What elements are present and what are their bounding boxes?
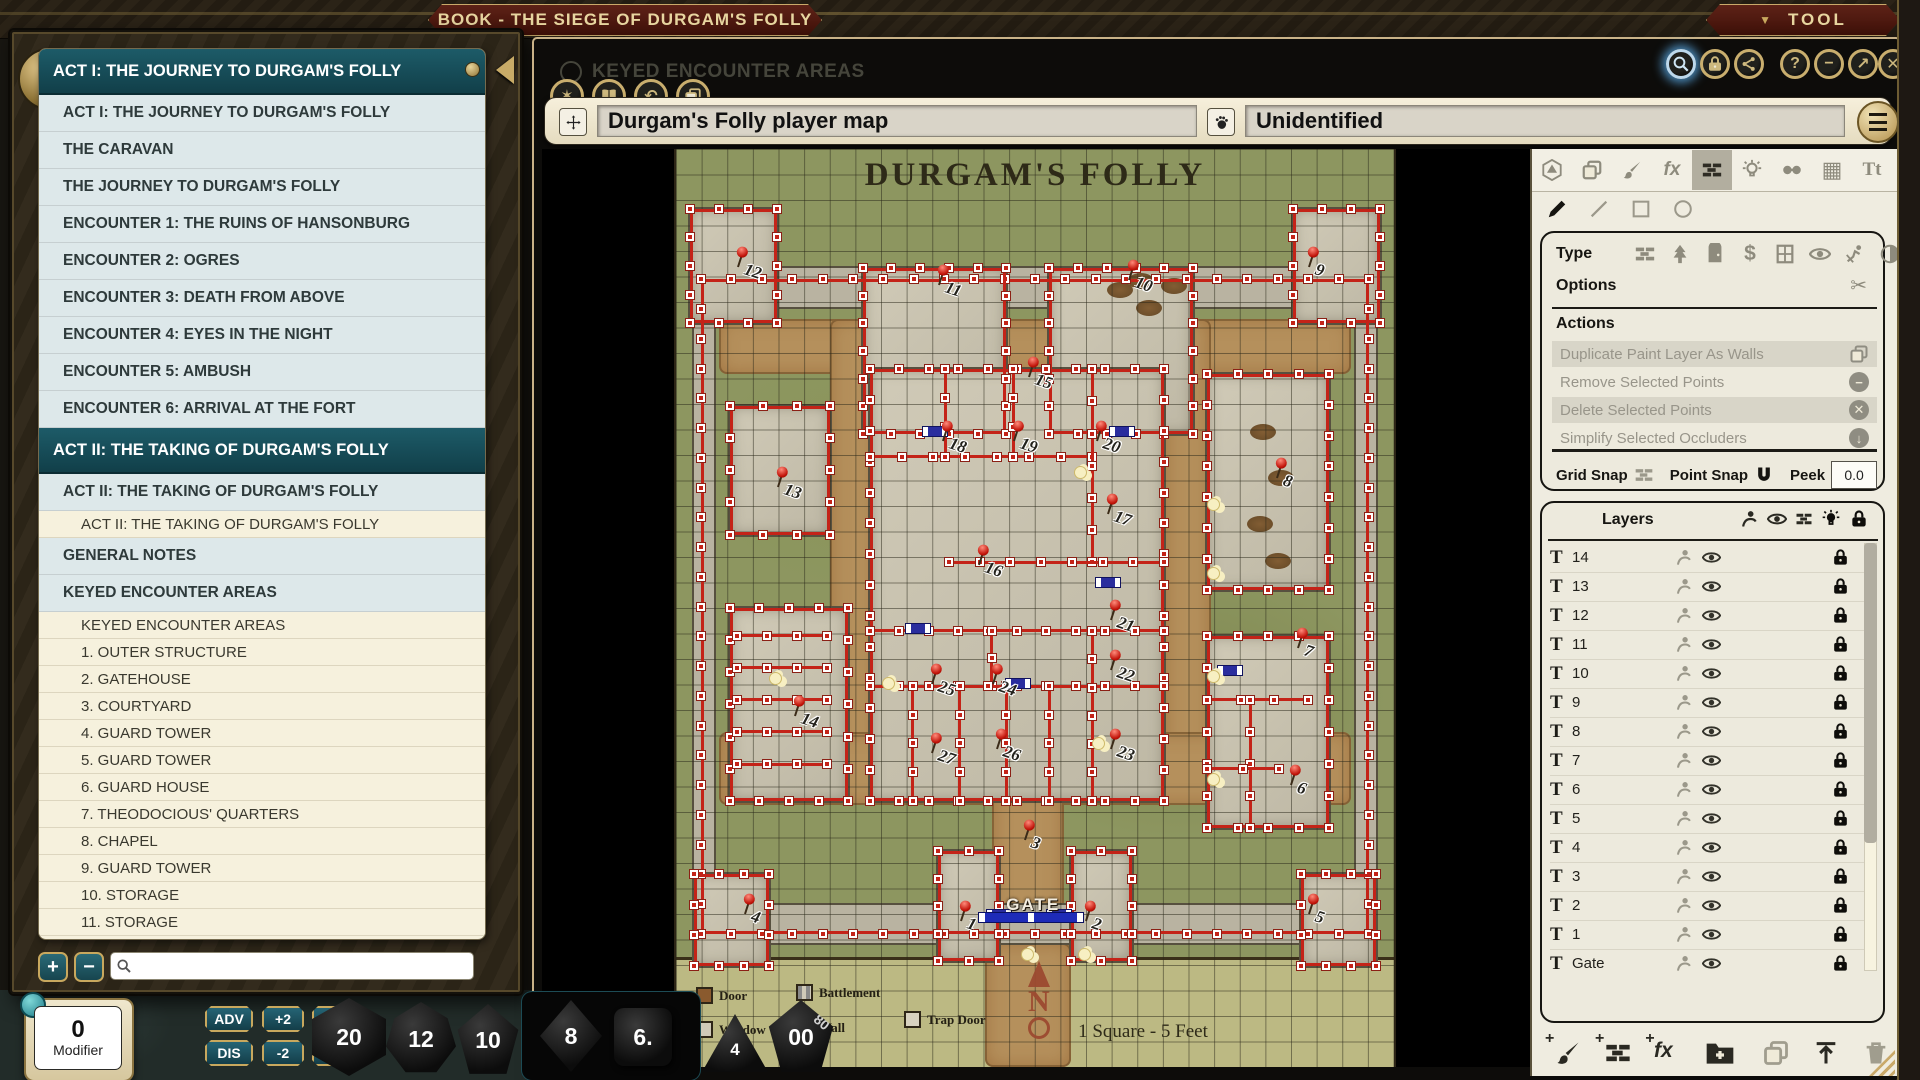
wall-node[interactable] bbox=[1071, 796, 1081, 806]
wall-node[interactable] bbox=[1100, 364, 1110, 374]
layer-row-2[interactable]: T2 bbox=[1550, 891, 1872, 921]
paint-tool-icon[interactable] bbox=[1612, 150, 1652, 190]
lock-layers-icon[interactable] bbox=[1849, 509, 1869, 529]
action-simplify-selected-occluders[interactable]: Simplify Selected Occluders↓ bbox=[1552, 425, 1877, 451]
layer-lock-icon[interactable] bbox=[1831, 838, 1850, 857]
wall-node[interactable] bbox=[843, 635, 853, 645]
plus2-button[interactable]: +2 bbox=[262, 1006, 304, 1032]
wall-node[interactable] bbox=[1159, 765, 1169, 775]
wall-node[interactable] bbox=[725, 497, 735, 507]
wall-node[interactable] bbox=[758, 401, 768, 411]
wall-node[interactable] bbox=[1245, 823, 1255, 833]
wall-node[interactable] bbox=[1324, 492, 1334, 502]
wall-node[interactable] bbox=[696, 453, 706, 463]
wall-node[interactable] bbox=[696, 364, 706, 374]
share-window-button[interactable] bbox=[1734, 49, 1764, 79]
wall-node[interactable] bbox=[894, 796, 904, 806]
wall-node[interactable] bbox=[1087, 396, 1097, 406]
wall-node[interactable] bbox=[772, 261, 782, 271]
wall-node[interactable] bbox=[983, 796, 993, 806]
wall-node[interactable] bbox=[792, 631, 802, 641]
layer-player-visibility-icon[interactable] bbox=[1674, 954, 1693, 973]
wall-node[interactable] bbox=[1087, 711, 1097, 721]
wall-node[interactable] bbox=[685, 204, 695, 214]
wall-occluder-line[interactable] bbox=[737, 666, 827, 669]
wall-node[interactable] bbox=[933, 956, 943, 966]
toc-item[interactable]: 10. STORAGE bbox=[39, 882, 485, 909]
wall-node[interactable] bbox=[1288, 318, 1298, 328]
wall-node[interactable] bbox=[1294, 369, 1304, 379]
wall-node[interactable] bbox=[696, 483, 706, 493]
wall-node[interactable] bbox=[1008, 452, 1018, 462]
wall-node[interactable] bbox=[696, 512, 706, 522]
wall-node[interactable] bbox=[953, 364, 963, 374]
wall-node[interactable] bbox=[1130, 364, 1140, 374]
mask-tool-icon[interactable] bbox=[1772, 150, 1812, 190]
wall-node[interactable] bbox=[1087, 493, 1097, 503]
wall-node[interactable] bbox=[908, 796, 918, 806]
wall-node[interactable] bbox=[865, 549, 875, 559]
wall-node[interactable] bbox=[944, 557, 954, 567]
wall-node[interactable] bbox=[933, 901, 943, 911]
wall-node[interactable] bbox=[792, 530, 802, 540]
wall-occluder-line[interactable] bbox=[737, 763, 827, 766]
toc-item[interactable]: 9. GUARD TOWER bbox=[39, 855, 485, 882]
wall-node[interactable] bbox=[1030, 274, 1040, 284]
wall-node[interactable] bbox=[1288, 232, 1298, 242]
toc-item[interactable]: 7. THEODOCIOUS' QUARTERS bbox=[39, 801, 485, 828]
layer-visibility-icon[interactable] bbox=[1702, 577, 1721, 596]
wall-node[interactable] bbox=[1001, 796, 1011, 806]
layer-visibility-icon[interactable] bbox=[1702, 954, 1721, 973]
rect-draw-icon[interactable] bbox=[1626, 194, 1656, 224]
wall-node[interactable] bbox=[1364, 364, 1374, 374]
wall-node[interactable] bbox=[915, 263, 925, 273]
wall-node[interactable] bbox=[714, 961, 724, 971]
wall-node[interactable] bbox=[1001, 767, 1011, 777]
dice-tool-icon[interactable] bbox=[1532, 150, 1572, 190]
wall-node[interactable] bbox=[714, 869, 724, 879]
circle-draw-icon[interactable] bbox=[1668, 194, 1698, 224]
wall-occluder-line[interactable] bbox=[1012, 369, 1015, 456]
wall-node[interactable] bbox=[1044, 263, 1054, 273]
wall-node[interactable] bbox=[1188, 318, 1198, 328]
wall-node[interactable] bbox=[865, 488, 875, 498]
wall-node[interactable] bbox=[1212, 274, 1222, 284]
wall-node[interactable] bbox=[689, 900, 699, 910]
wall-node[interactable] bbox=[1364, 483, 1374, 493]
wall-node[interactable] bbox=[1236, 695, 1246, 705]
wall-node[interactable] bbox=[1100, 681, 1110, 691]
wall-node[interactable] bbox=[772, 232, 782, 242]
layer-visibility-icon[interactable] bbox=[1702, 780, 1721, 799]
wall-node[interactable] bbox=[818, 274, 828, 284]
layer-player-visibility-icon[interactable] bbox=[1674, 751, 1693, 770]
layer-player-visibility-icon[interactable] bbox=[1674, 780, 1693, 799]
wall-node[interactable] bbox=[924, 364, 934, 374]
wall-node[interactable] bbox=[1182, 929, 1192, 939]
wall-node[interactable] bbox=[1044, 738, 1054, 748]
wall-node[interactable] bbox=[754, 603, 764, 613]
line-draw-icon[interactable] bbox=[1584, 194, 1614, 224]
map-share-field[interactable]: Unidentified bbox=[1245, 105, 1845, 137]
paw-token-icon[interactable] bbox=[1207, 108, 1235, 136]
toc-item[interactable]: ENCOUNTER 4: EYES IN THE NIGHT bbox=[39, 317, 485, 354]
wall-node[interactable] bbox=[1087, 525, 1097, 535]
wall-node[interactable] bbox=[994, 846, 1004, 856]
wall-node[interactable] bbox=[894, 681, 904, 691]
wall-node[interactable] bbox=[1202, 369, 1212, 379]
type-window-icon[interactable] bbox=[1772, 241, 1798, 267]
wall-node[interactable] bbox=[1273, 274, 1283, 284]
layer-lock-icon[interactable] bbox=[1831, 780, 1850, 799]
wall-node[interactable] bbox=[1087, 461, 1097, 471]
wall-node[interactable] bbox=[743, 204, 753, 214]
wall-node[interactable] bbox=[762, 695, 772, 705]
wall-node[interactable] bbox=[848, 929, 858, 939]
wall-node[interactable] bbox=[1159, 580, 1169, 590]
wall-node[interactable] bbox=[1346, 204, 1356, 214]
layer-row-8[interactable]: T8 bbox=[1550, 717, 1872, 747]
layer-visibility-icon[interactable] bbox=[1702, 838, 1721, 857]
wall-node[interactable] bbox=[696, 334, 706, 344]
wall-node[interactable] bbox=[1294, 585, 1304, 595]
wall-node[interactable] bbox=[1001, 710, 1011, 720]
wall-occluder-outline[interactable] bbox=[1293, 209, 1379, 324]
wall-node[interactable] bbox=[1274, 764, 1284, 774]
wall-node[interactable] bbox=[843, 603, 853, 613]
wall-node[interactable] bbox=[1317, 318, 1327, 328]
wall-node[interactable] bbox=[822, 727, 832, 737]
wall-node[interactable] bbox=[814, 796, 824, 806]
light-marker[interactable] bbox=[882, 677, 895, 690]
wall-node[interactable] bbox=[1001, 318, 1011, 328]
wall-node[interactable] bbox=[689, 869, 699, 879]
toc-item[interactable]: 2. GATEHOUSE bbox=[39, 666, 485, 693]
wall-node[interactable] bbox=[1317, 204, 1327, 214]
wall-node[interactable] bbox=[685, 232, 695, 242]
wall-node[interactable] bbox=[739, 869, 749, 879]
wall-node[interactable] bbox=[1233, 585, 1243, 595]
grid-tool-icon[interactable]: ▦ bbox=[1812, 150, 1852, 190]
wall-node[interactable] bbox=[865, 765, 875, 775]
wall-node[interactable] bbox=[825, 433, 835, 443]
type-terrain-icon[interactable] bbox=[1667, 241, 1693, 267]
toc-item[interactable]: ACT II: THE TAKING OF DURGAM'S FOLLY bbox=[39, 474, 485, 511]
wall-node[interactable] bbox=[908, 767, 918, 777]
wall-node[interactable] bbox=[1202, 431, 1212, 441]
toc-item[interactable]: ACT I: THE JOURNEY TO DURGAM'S FOLLY bbox=[39, 49, 485, 95]
layer-row-6[interactable]: T6 bbox=[1550, 775, 1872, 805]
wall-node[interactable] bbox=[762, 631, 772, 641]
minus2-button[interactable]: -2 bbox=[262, 1040, 304, 1066]
wall-node[interactable] bbox=[994, 929, 1004, 939]
wall-node[interactable] bbox=[908, 738, 918, 748]
layer-visibility-icon[interactable] bbox=[1702, 693, 1721, 712]
wall-node[interactable] bbox=[1159, 611, 1169, 621]
wall-node[interactable] bbox=[1159, 457, 1169, 467]
light-marker[interactable] bbox=[1092, 737, 1105, 750]
wall-node[interactable] bbox=[1073, 263, 1083, 273]
wall-occluder-line[interactable] bbox=[737, 634, 827, 637]
wall-node[interactable] bbox=[933, 846, 943, 856]
wall-node[interactable] bbox=[1067, 557, 1077, 567]
wall-node[interactable] bbox=[1324, 727, 1334, 737]
layer-visibility-icon[interactable] bbox=[1702, 606, 1721, 625]
wall-node[interactable] bbox=[1364, 661, 1374, 671]
type-wall-icon[interactable] bbox=[1632, 241, 1658, 267]
wall-node[interactable] bbox=[1375, 261, 1385, 271]
wall-node[interactable] bbox=[908, 681, 918, 691]
wall-node[interactable] bbox=[725, 433, 735, 443]
wall-node[interactable] bbox=[858, 346, 868, 356]
wall-node[interactable] bbox=[725, 530, 735, 540]
wall-node[interactable] bbox=[1127, 846, 1137, 856]
wall-node[interactable] bbox=[1324, 631, 1334, 641]
wall-node[interactable] bbox=[772, 318, 782, 328]
wall-node[interactable] bbox=[865, 626, 875, 636]
wall-node[interactable] bbox=[1324, 369, 1334, 379]
layer-lock-icon[interactable] bbox=[1831, 606, 1850, 625]
zoom-out-button[interactable]: − bbox=[74, 952, 104, 982]
wall-node[interactable] bbox=[1296, 900, 1306, 910]
wall-node[interactable] bbox=[1100, 796, 1110, 806]
wall-node[interactable] bbox=[1273, 929, 1283, 939]
layer-player-visibility-icon[interactable] bbox=[1674, 693, 1693, 712]
wall-node[interactable] bbox=[1242, 929, 1252, 939]
action-remove-selected-points[interactable]: Remove Selected Points− bbox=[1552, 369, 1877, 395]
wall-node[interactable] bbox=[1036, 557, 1046, 567]
toc-item[interactable]: 11. STORAGE bbox=[39, 909, 485, 936]
toc-item[interactable]: THE CARAVAN bbox=[39, 132, 485, 169]
wall-node[interactable] bbox=[858, 263, 868, 273]
layer-player-visibility-icon[interactable] bbox=[1674, 635, 1693, 654]
wall-node[interactable] bbox=[1364, 453, 1374, 463]
layer-visibility-icon[interactable] bbox=[1702, 925, 1721, 944]
wall-node[interactable] bbox=[696, 602, 706, 612]
wall-node[interactable] bbox=[1012, 626, 1022, 636]
wall-node[interactable] bbox=[1245, 695, 1255, 705]
wall-node[interactable] bbox=[1364, 542, 1374, 552]
wall-node[interactable] bbox=[1098, 557, 1108, 567]
layer-row-10[interactable]: T10 bbox=[1550, 659, 1872, 689]
wall-node[interactable] bbox=[865, 580, 875, 590]
layer-lock-icon[interactable] bbox=[1831, 751, 1850, 770]
wall-node[interactable] bbox=[964, 846, 974, 856]
wall-node[interactable] bbox=[1233, 369, 1243, 379]
wall-node[interactable] bbox=[865, 518, 875, 528]
wall-node[interactable] bbox=[1159, 796, 1169, 806]
wall-node[interactable] bbox=[822, 759, 832, 769]
pan-mode-icon[interactable] bbox=[559, 108, 587, 136]
wall-node[interactable] bbox=[1364, 810, 1374, 820]
wall-node[interactable] bbox=[1263, 823, 1273, 833]
wall-node[interactable] bbox=[1324, 823, 1334, 833]
light-marker[interactable] bbox=[1207, 567, 1220, 580]
toc-item[interactable]: 3. COURTYARD bbox=[39, 693, 485, 720]
wall-node[interactable] bbox=[1044, 291, 1054, 301]
wall-node[interactable] bbox=[955, 738, 965, 748]
wall-node[interactable] bbox=[696, 780, 706, 790]
wall-node[interactable] bbox=[1324, 585, 1334, 595]
wall-node[interactable] bbox=[732, 759, 742, 769]
wall-node[interactable] bbox=[1324, 695, 1334, 705]
wall-node[interactable] bbox=[1202, 695, 1212, 705]
wall-node[interactable] bbox=[696, 423, 706, 433]
wall-node[interactable] bbox=[1202, 585, 1212, 595]
wall-node[interactable] bbox=[787, 929, 797, 939]
layer-player-visibility-icon[interactable] bbox=[1674, 809, 1693, 828]
layer-row-12[interactable]: T12 bbox=[1550, 601, 1872, 631]
wall-node[interactable] bbox=[1202, 400, 1212, 410]
add-paint-layer-button[interactable] bbox=[1554, 1039, 1582, 1067]
wall-node[interactable] bbox=[685, 261, 695, 271]
layer-visibility-icon[interactable] bbox=[1702, 635, 1721, 654]
layer-row-7[interactable]: T7 bbox=[1550, 746, 1872, 776]
lock-window-button[interactable] bbox=[1700, 49, 1730, 79]
wall-node[interactable] bbox=[1159, 626, 1169, 636]
wall-node[interactable] bbox=[1159, 681, 1169, 691]
wall-node[interactable] bbox=[1233, 631, 1243, 641]
collapse-chevron-icon[interactable] bbox=[496, 56, 514, 84]
layer-row-gate[interactable]: TGate bbox=[1550, 949, 1872, 973]
wall-node[interactable] bbox=[1263, 585, 1273, 595]
wall-node[interactable] bbox=[1242, 274, 1252, 284]
toc-item[interactable]: THE JOURNEY TO DURGAM'S FOLLY bbox=[39, 169, 485, 206]
player-visibility-icon[interactable] bbox=[1739, 509, 1759, 529]
wall-node[interactable] bbox=[792, 759, 802, 769]
wall-node[interactable] bbox=[994, 874, 1004, 884]
wall-node[interactable] bbox=[1202, 823, 1212, 833]
wall-node[interactable] bbox=[1159, 703, 1169, 713]
wall-node[interactable] bbox=[940, 393, 950, 403]
wall-node[interactable] bbox=[725, 465, 735, 475]
wall-node[interactable] bbox=[1159, 518, 1169, 528]
layer-player-visibility-icon[interactable] bbox=[1674, 606, 1693, 625]
layer-lock-icon[interactable] bbox=[1831, 809, 1850, 828]
wall-node[interactable] bbox=[792, 663, 802, 673]
wall-node[interactable] bbox=[1371, 869, 1381, 879]
wall-node[interactable] bbox=[743, 318, 753, 328]
wall-node[interactable] bbox=[725, 796, 735, 806]
toc-item[interactable]: ENCOUNTER 1: THE RUINS OF HANSONBURG bbox=[39, 206, 485, 243]
wall-node[interactable] bbox=[1071, 626, 1081, 636]
wall-node[interactable] bbox=[1346, 318, 1356, 328]
wall-node[interactable] bbox=[1364, 691, 1374, 701]
wall-node[interactable] bbox=[1127, 901, 1137, 911]
layer-row-13[interactable]: T13 bbox=[1550, 572, 1872, 602]
wall-node[interactable] bbox=[696, 750, 706, 760]
wall-node[interactable] bbox=[1188, 291, 1198, 301]
action-delete-selected-points[interactable]: Delete Selected Points✕ bbox=[1552, 397, 1877, 423]
wall-node[interactable] bbox=[1096, 846, 1106, 856]
layer-row-9[interactable]: T9 bbox=[1550, 688, 1872, 718]
wall-node[interactable] bbox=[1288, 290, 1298, 300]
wall-node[interactable] bbox=[825, 530, 835, 540]
type-visible-icon[interactable] bbox=[1807, 241, 1833, 267]
map-canvas[interactable]: 1234567891011121314151617181920212223242… bbox=[542, 149, 1530, 1067]
wall-node[interactable] bbox=[758, 530, 768, 540]
wall-node[interactable] bbox=[1202, 461, 1212, 471]
point-snap-icon[interactable] bbox=[1754, 465, 1774, 485]
wall-node[interactable] bbox=[762, 727, 772, 737]
wall-node[interactable] bbox=[1324, 523, 1334, 533]
zoom-tool-button[interactable] bbox=[1666, 49, 1696, 79]
wall-node[interactable] bbox=[1364, 393, 1374, 403]
layer-row-11[interactable]: T11 bbox=[1550, 630, 1872, 660]
layer-lock-icon[interactable] bbox=[1831, 722, 1850, 741]
type-pit-icon[interactable] bbox=[1842, 241, 1868, 267]
wall-node[interactable] bbox=[696, 572, 706, 582]
wall-node[interactable] bbox=[933, 929, 943, 939]
wall-node[interactable] bbox=[1371, 930, 1381, 940]
wall-node[interactable] bbox=[685, 318, 695, 328]
wall-node[interactable] bbox=[725, 603, 735, 613]
wall-node[interactable] bbox=[1066, 929, 1076, 939]
wall-node[interactable] bbox=[696, 661, 706, 671]
layer-row-14[interactable]: T14 bbox=[1550, 543, 1872, 573]
wall-node[interactable] bbox=[1321, 869, 1331, 879]
wall-node[interactable] bbox=[1364, 334, 1374, 344]
wall-node[interactable] bbox=[1128, 557, 1138, 567]
wall-node[interactable] bbox=[1202, 631, 1212, 641]
wall-occluder-line[interactable] bbox=[737, 698, 827, 701]
wall-node[interactable] bbox=[1151, 929, 1161, 939]
type-treasure-icon[interactable]: $ bbox=[1737, 241, 1763, 267]
wall-node[interactable] bbox=[1288, 204, 1298, 214]
wall-node[interactable] bbox=[696, 542, 706, 552]
wall-node[interactable] bbox=[1364, 750, 1374, 760]
help-button[interactable]: ? bbox=[1780, 49, 1810, 79]
light-marker[interactable] bbox=[1078, 948, 1091, 961]
wall-node[interactable] bbox=[865, 395, 875, 405]
wall-node[interactable] bbox=[1044, 796, 1054, 806]
wall-node[interactable] bbox=[1159, 488, 1169, 498]
wall-node[interactable] bbox=[865, 452, 875, 462]
wall-node[interactable] bbox=[908, 710, 918, 720]
lighting-layer-icon[interactable] bbox=[1821, 509, 1841, 529]
wall-node[interactable] bbox=[1044, 318, 1054, 328]
door-marker[interactable] bbox=[1095, 577, 1121, 588]
wall-node[interactable] bbox=[1202, 727, 1212, 737]
wall-node[interactable] bbox=[1087, 364, 1097, 374]
wall-node[interactable] bbox=[1188, 374, 1198, 384]
wall-node[interactable] bbox=[1375, 204, 1385, 214]
wall-node[interactable] bbox=[714, 318, 724, 328]
wall-node[interactable] bbox=[858, 318, 868, 328]
door-marker[interactable] bbox=[905, 623, 931, 634]
wall-node[interactable] bbox=[1130, 796, 1140, 806]
layer-lock-icon[interactable] bbox=[1831, 635, 1850, 654]
add-folder-button[interactable] bbox=[1704, 1037, 1736, 1069]
wall-node[interactable] bbox=[1288, 261, 1298, 271]
toc-item[interactable]: ACT II: THE TAKING OF DURGAM'S FOLLY bbox=[39, 511, 485, 538]
wall-node[interactable] bbox=[983, 364, 993, 374]
wall-node[interactable] bbox=[784, 796, 794, 806]
wall-node[interactable] bbox=[784, 603, 794, 613]
wall-node[interactable] bbox=[1245, 727, 1255, 737]
toc-item[interactable]: ACT I: THE JOURNEY TO DURGAM'S FOLLY bbox=[39, 95, 485, 132]
wall-node[interactable] bbox=[1324, 461, 1334, 471]
wall-node[interactable] bbox=[1269, 695, 1279, 705]
wall-node[interactable] bbox=[1005, 557, 1015, 567]
wall-node[interactable] bbox=[1087, 796, 1097, 806]
wall-node[interactable] bbox=[933, 874, 943, 884]
grid-snap-icon[interactable] bbox=[1634, 465, 1654, 485]
wall-node[interactable] bbox=[1233, 823, 1243, 833]
wall-node[interactable] bbox=[1263, 631, 1273, 641]
wall-node[interactable] bbox=[696, 840, 706, 850]
